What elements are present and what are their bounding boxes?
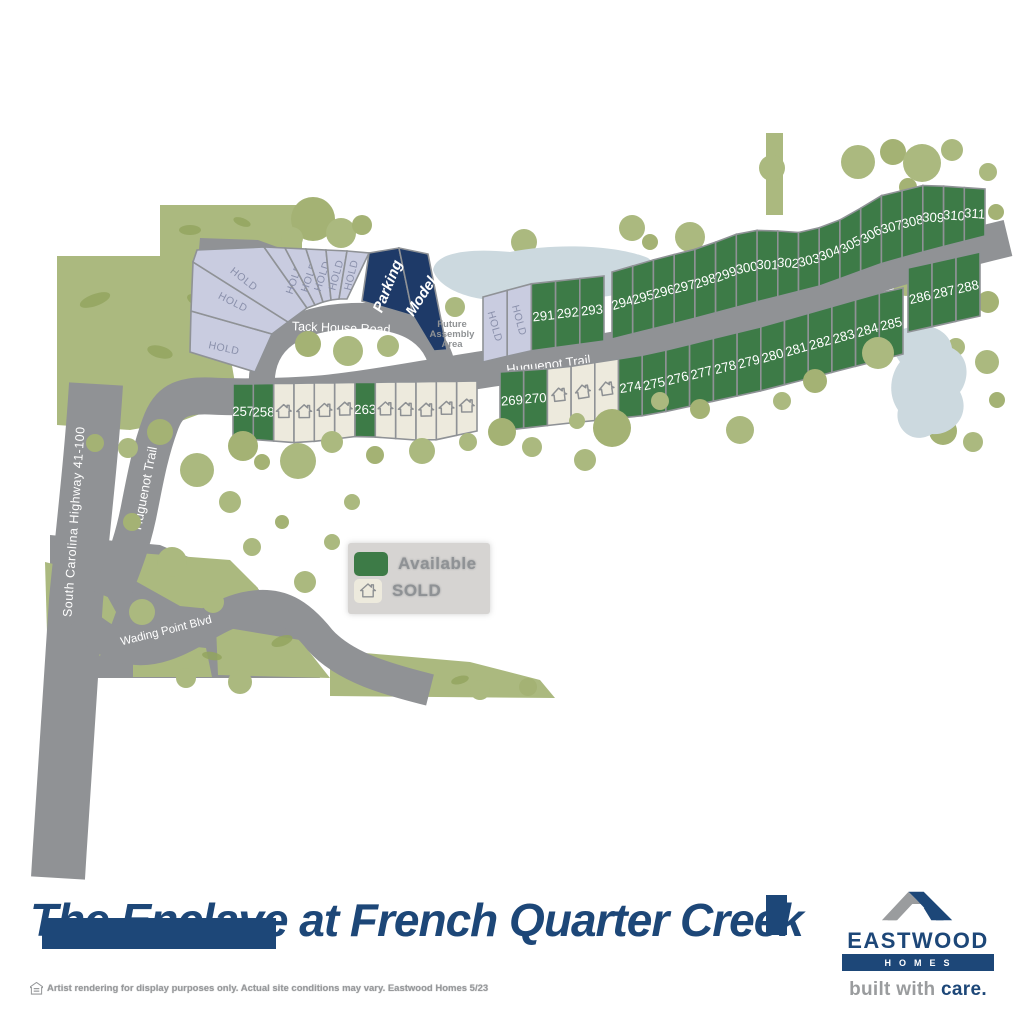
eastwood-homes-logo: EASTWOOD HOMES built with care.	[842, 886, 994, 1001]
tree	[975, 350, 999, 374]
lot-sold	[436, 381, 456, 439]
tree	[880, 139, 906, 165]
tree	[690, 399, 710, 419]
tree	[862, 337, 894, 369]
lot-sold	[416, 382, 436, 441]
tree	[941, 139, 963, 161]
lot-sold	[335, 383, 355, 440]
logo-name: EASTWOOD	[842, 930, 994, 952]
lot-sold	[457, 381, 477, 435]
lot-number-269: 269	[500, 392, 523, 408]
tree	[445, 297, 465, 317]
tree	[459, 433, 477, 451]
lot-sold	[396, 382, 416, 440]
tree	[123, 513, 141, 531]
tree	[157, 547, 187, 577]
equal-housing-icon	[30, 982, 43, 995]
available-swatch	[354, 552, 388, 576]
tree	[409, 438, 435, 464]
tree	[243, 538, 261, 556]
lot-number-270: 270	[524, 390, 547, 406]
tree	[569, 413, 585, 429]
tree	[254, 454, 270, 470]
tree	[377, 335, 399, 357]
logo-homes: HOMES	[842, 954, 994, 971]
tree	[619, 215, 645, 241]
tree	[86, 434, 104, 452]
tree	[219, 491, 241, 513]
logo-tagline: built with care.	[842, 979, 994, 1001]
title-overlay-bar	[766, 895, 787, 935]
lot-sold	[294, 383, 314, 443]
tree	[726, 416, 754, 444]
tree	[176, 668, 196, 688]
tree	[963, 432, 983, 452]
tree	[180, 453, 214, 487]
site-plan-map: South Carolina Highway 41-100 Huguenot T…	[0, 0, 1020, 880]
tree	[333, 336, 363, 366]
tree	[759, 155, 785, 181]
tree	[488, 418, 516, 446]
tree	[841, 145, 875, 179]
tree	[294, 571, 316, 593]
lot-number-310: 310	[942, 207, 965, 223]
tree	[228, 431, 258, 461]
legend-available-label: Available	[398, 554, 477, 574]
disclaimer: Artist rendering for display purposes on…	[30, 982, 488, 995]
sold-house-icon	[359, 582, 377, 600]
site-map-page: South Carolina Highway 41-100 Huguenot T…	[0, 0, 1020, 1020]
tree	[642, 234, 658, 250]
lot-number-293: 293	[580, 301, 604, 318]
tree	[118, 438, 138, 458]
legend-row-sold: SOLD	[354, 579, 482, 603]
eastwood-roof-icon	[874, 886, 962, 924]
title-block: The Enclave at French Quarter Creek EAST…	[0, 885, 1020, 1020]
lot-sold	[547, 366, 571, 425]
tree	[275, 515, 289, 529]
tree	[352, 215, 372, 235]
tree	[574, 449, 596, 471]
tree	[519, 678, 537, 696]
tree	[344, 494, 360, 510]
lot-number-311: 311	[964, 205, 986, 221]
tree	[593, 409, 631, 447]
disclaimer-text: Artist rendering for display purposes on…	[47, 983, 488, 994]
tree	[773, 392, 791, 410]
future-assembly-label-line3: Area	[441, 339, 463, 350]
lot-sold	[375, 382, 395, 439]
legend-row-available: Available	[354, 552, 482, 576]
tree	[147, 419, 173, 445]
tree	[202, 591, 224, 613]
lot-number-309: 309	[922, 210, 945, 226]
title-overlay-rectangle	[42, 918, 276, 949]
tree	[366, 446, 384, 464]
tree	[295, 331, 321, 357]
tree	[326, 218, 356, 248]
tree	[979, 163, 997, 181]
lot-number-257: 257	[232, 404, 254, 419]
tree	[324, 534, 340, 550]
tree	[522, 437, 542, 457]
lot-number-292: 292	[556, 304, 580, 321]
sold-swatch	[354, 579, 382, 603]
tagline-accent: care.	[941, 979, 987, 1000]
lot-number-291: 291	[532, 307, 556, 324]
tree	[988, 204, 1004, 220]
tree	[470, 680, 490, 700]
tree	[280, 443, 316, 479]
tree	[129, 599, 155, 625]
lot-number-258: 258	[252, 404, 274, 419]
legend: Available SOLD	[348, 543, 490, 614]
tree	[651, 392, 669, 410]
legend-sold-label: SOLD	[392, 581, 441, 601]
tree	[989, 392, 1005, 408]
tree	[321, 431, 343, 453]
tagline-gray: built with	[849, 979, 941, 1000]
leaf-accent	[179, 225, 201, 235]
tree	[228, 670, 252, 694]
lot-sold	[274, 383, 294, 442]
tree	[281, 227, 303, 249]
tree	[903, 144, 941, 182]
lot-number-301: 301	[756, 257, 778, 273]
lot-number-263: 263	[354, 402, 376, 417]
tree	[803, 369, 827, 393]
